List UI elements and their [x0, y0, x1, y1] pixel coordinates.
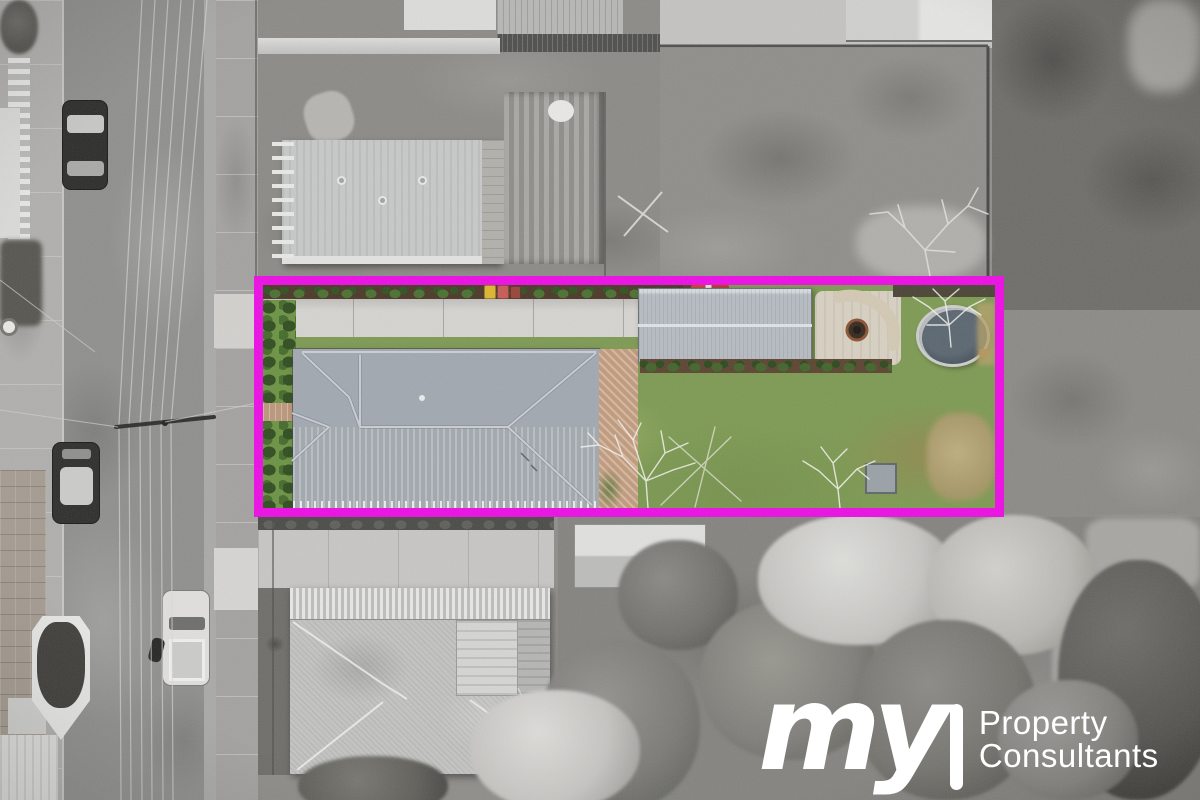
roof-vent: [378, 196, 387, 205]
field-right: [1002, 310, 1200, 522]
right-footpath: [216, 0, 258, 800]
pool-mulch: [893, 285, 995, 297]
leaf-litter: [927, 413, 995, 501]
white-ute: [162, 590, 210, 686]
veranda-roof: [290, 588, 550, 620]
main-house-roof-lower: [293, 427, 599, 508]
bottom-garden-strip: [258, 588, 292, 775]
ute-windshield: [169, 617, 205, 630]
logo-script-my: my: [758, 680, 942, 776]
highlighted-property-boundary: [254, 276, 1004, 517]
aerial-photo: my Property Consultants: [0, 0, 1200, 800]
top-neighbour-house-roof: [282, 140, 500, 264]
yellow-bin: [484, 285, 496, 299]
leaf-litter-pool: [977, 303, 995, 365]
bottom-hedge: [258, 517, 554, 531]
small-lawn-shed: [865, 463, 897, 494]
driveway-crossing-top: [214, 294, 258, 348]
bottom-driveway: [258, 530, 554, 588]
left-house-roof-bottom: [0, 735, 58, 800]
left-house-roof: [0, 108, 20, 238]
roof-eave-lichen: [293, 501, 599, 508]
logo-word-consultants: Consultants: [979, 739, 1159, 772]
tree: [0, 0, 38, 54]
roof-vent: [418, 176, 427, 185]
outdoor-table: [548, 100, 574, 122]
boat-cover: [37, 622, 85, 708]
maroon-bin: [510, 286, 521, 299]
stone-courtyard: [815, 291, 901, 365]
logo-bar: [950, 704, 963, 790]
top-roof-white: [404, 0, 496, 30]
car-rear-window: [67, 161, 104, 176]
frosted-tree: [470, 690, 640, 800]
driveway-crossing-bottom: [214, 548, 258, 610]
pergola-frame: [272, 142, 294, 264]
brick-side-path: [599, 349, 638, 508]
garage-roof-top-right: [846, 0, 992, 42]
brick-cross-path: [263, 403, 296, 421]
car-roof: [60, 467, 93, 505]
roof-vent: [337, 176, 346, 185]
logo-words: Property Consultants: [979, 706, 1159, 772]
roof-metal-panel: [456, 620, 518, 696]
logo-word-property: Property: [979, 706, 1159, 739]
carport-dark-roof: [497, 34, 665, 52]
bare-tree-glow: [856, 206, 986, 280]
parked-car-dark-top: [62, 100, 108, 190]
red-bin: [497, 285, 509, 299]
agency-watermark: my Property Consultants: [758, 680, 1188, 800]
car-windshield: [62, 449, 91, 459]
top-roof-corrugated: [497, 0, 623, 34]
light-field-corner: [1128, 0, 1200, 92]
mid-hedge: [640, 359, 892, 373]
shed-ridge: [638, 324, 812, 327]
top-eave-band: [258, 38, 500, 54]
parked-car-dark-mid: [52, 442, 100, 524]
ute-tray: [169, 639, 205, 681]
left-garden-bed: [0, 240, 42, 326]
paver-strip: [482, 140, 506, 264]
driveway: [263, 299, 643, 337]
car-windshield: [67, 115, 104, 133]
round-tank: [0, 318, 18, 336]
